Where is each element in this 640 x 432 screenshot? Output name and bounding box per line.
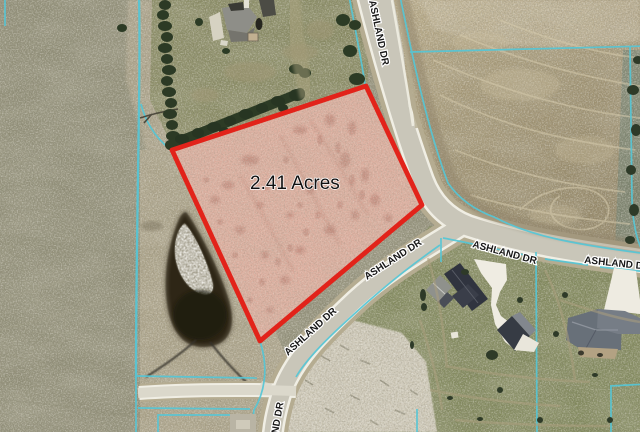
svg-text:2.41 Acres: 2.41 Acres	[250, 173, 340, 194]
